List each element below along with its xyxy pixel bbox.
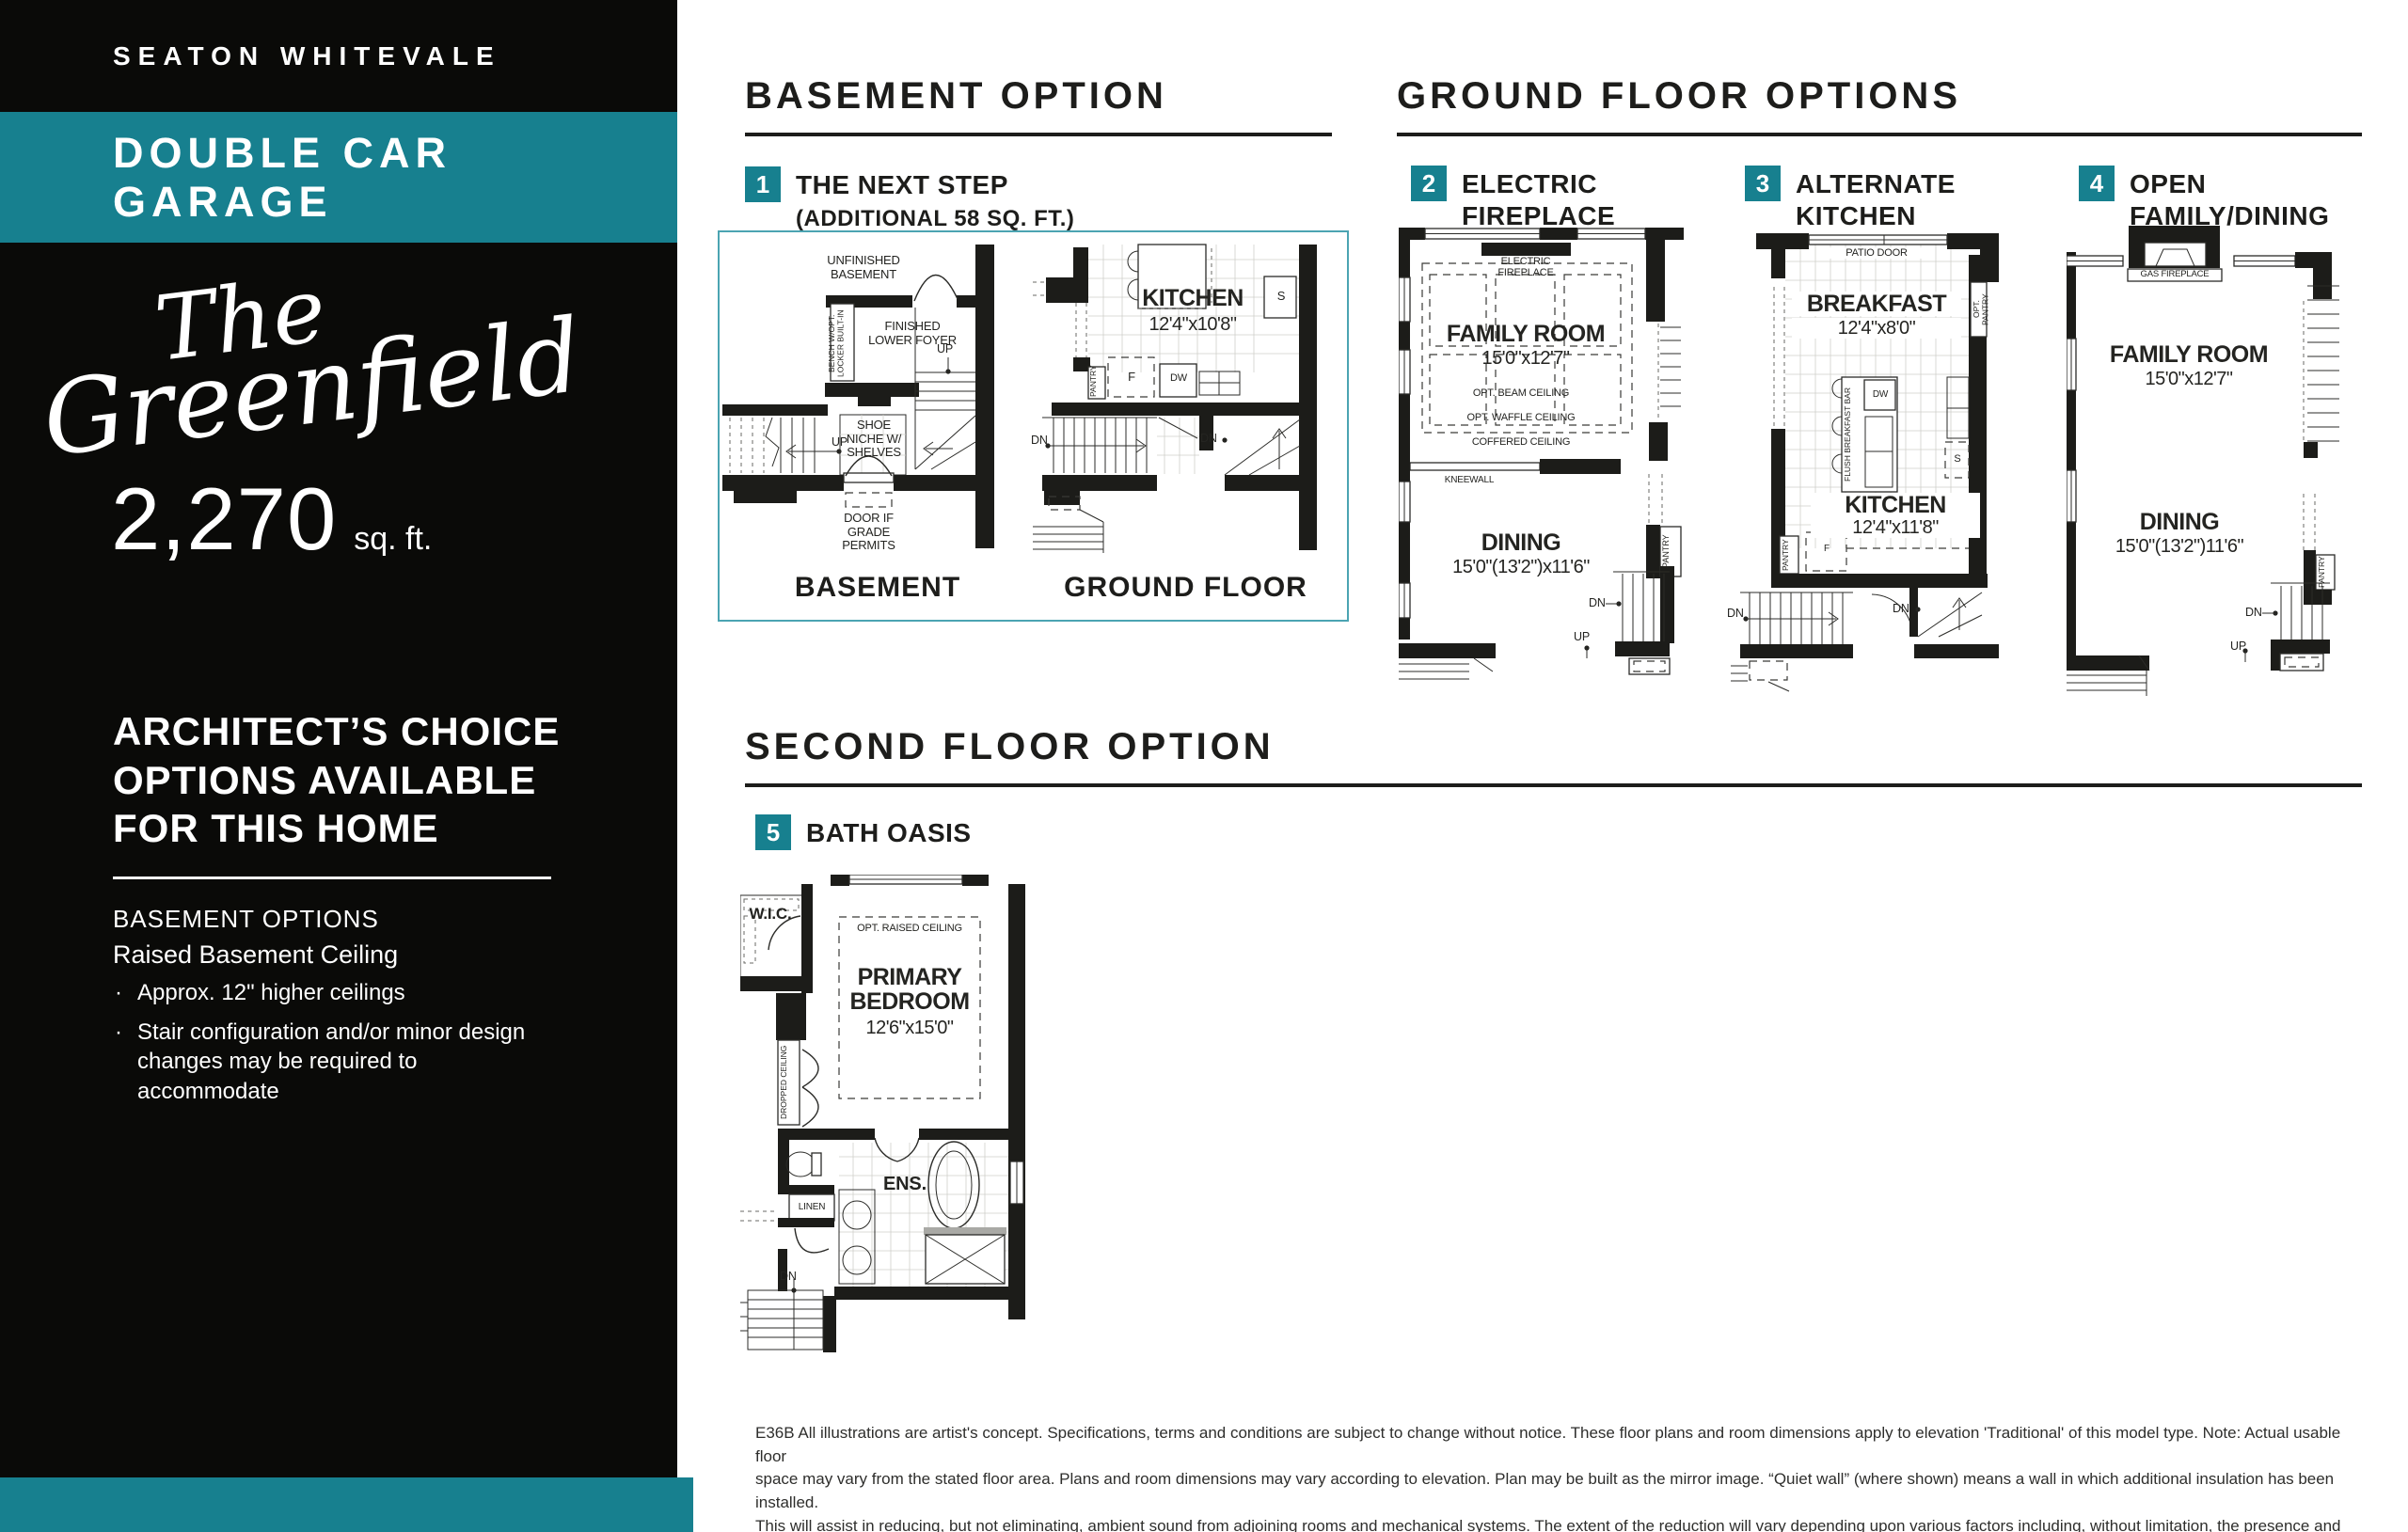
option-4-floorplan-drawing	[2067, 226, 2403, 696]
option-3-header: 3 ALTERNATE KITCHEN	[1745, 166, 1956, 232]
fixture-label: F	[1122, 371, 1141, 385]
fixture-label: S	[1949, 453, 1966, 465]
room-dims: 15'0"x12'7"	[2095, 369, 2283, 389]
option-1-header: 1 THE NEXT STEP (ADDITIONAL 58 SQ. FT.)	[745, 166, 1074, 232]
room-label: PANTRY	[1782, 538, 1797, 572]
basement-option-bullets: · Approx. 12" higher ceilings · Stair co…	[115, 978, 564, 1116]
stair-label: DN	[780, 1270, 797, 1283]
option-1-subtitle: (ADDITIONAL 58 SQ. FT.)	[796, 205, 1074, 232]
room-dims: 12'4"x10'8"	[1108, 314, 1277, 335]
stair-label: UP	[937, 342, 953, 355]
stair-label: UP	[1574, 630, 1590, 643]
heading-rule	[745, 133, 1332, 136]
fixture-label: S	[1273, 290, 1290, 304]
room-label: SHOE NICHE W/ SHELVES	[840, 419, 908, 460]
section-title: SECOND FLOOR OPTION	[745, 726, 2362, 768]
room-title: KITCHEN	[1811, 493, 1980, 517]
stair-label: DN	[1893, 602, 1909, 615]
bullet-marker: ·	[115, 1018, 137, 1107]
section-title: BASEMENT OPTION	[745, 75, 1332, 118]
sqft-unit: sq. ft.	[354, 521, 432, 558]
heading-rule	[1397, 133, 2362, 136]
room-dims: 15'0"x12'7"	[1441, 348, 1610, 369]
basement-option-name: Raised Basement Ceiling	[113, 940, 398, 970]
sidebar-footer-band	[0, 1477, 693, 1532]
room-title: W.I.C.	[742, 905, 799, 923]
architects-line-1: ARCHITECT’S CHOICE	[113, 707, 560, 756]
room-title: FAMILY ROOM	[1441, 322, 1610, 346]
room-label: DOOR IF GRADE PERMITS	[829, 512, 909, 553]
stair-label: UP	[832, 435, 848, 449]
bath-oasis-floorplan-drawing	[740, 875, 1051, 1387]
option-4-badge: 4	[2079, 166, 2115, 201]
stair-label: DN	[1727, 607, 1744, 620]
option-5-header: 5 BATH OASIS	[755, 814, 972, 850]
room-dims: 12'6"x15'0"	[825, 1018, 994, 1038]
door-label: PATIO DOOR	[1830, 247, 1924, 259]
room-dims: 12'4"x8'0"	[1792, 318, 1961, 339]
room-title: ENS.	[872, 1174, 938, 1194]
option-2-floorplan: ELECTRIC FIREPLACE FAMILY ROOM 15'0"x12'…	[1399, 228, 1704, 698]
fixture-label: ELECTRIC FIREPLACE	[1478, 256, 1574, 279]
plan-caption: BASEMENT	[722, 572, 1033, 604]
fixture-label: DW	[1866, 389, 1894, 400]
bullet-item: · Stair configuration and/or minor desig…	[115, 1018, 564, 1107]
disclaimer-line: This will assist in reducing, but not el…	[755, 1515, 2347, 1532]
bullet-text: Stair configuration and/or minor design …	[137, 1018, 564, 1107]
room-dims: 12'4"x11'8"	[1811, 517, 1980, 538]
room-title: FAMILY ROOM	[2095, 342, 2283, 367]
option-5-title: BATH OASIS	[806, 814, 972, 850]
sqft-value: 2,270	[111, 468, 337, 570]
option-2-floorplan-drawing	[1399, 228, 1704, 698]
community-name: SEATON WHITEVALE	[113, 41, 501, 71]
stair-label: DN	[1589, 596, 1606, 609]
room-dims: 15'0"(13'2")x11'6"	[1427, 557, 1615, 577]
room-label: OPT. PANTRY	[1972, 284, 1985, 335]
option-4-floorplan: GAS FIREPLACE FAMILY ROOM 15'0"x12'7" DI…	[2067, 226, 2403, 696]
stair-label: DN	[1031, 434, 1048, 447]
room-label: LINEN	[789, 1202, 834, 1212]
bullet-item: · Approx. 12" higher ceilings	[115, 978, 564, 1008]
disclaimer-line: E36B All illustrations are artist's conc…	[755, 1422, 2347, 1468]
ceiling-label: OPT. RAISED CEILING	[844, 923, 975, 934]
garage-banner: DOUBLE CAR GARAGE	[0, 112, 677, 243]
basement-options-heading: BASEMENT OPTIONS	[113, 905, 379, 934]
room-title: DINING	[2085, 510, 2273, 534]
ceiling-label: COFFERED CEILING	[1455, 436, 1587, 448]
heading-rule	[745, 783, 2362, 787]
option-1-title-text: THE NEXT STEP	[796, 169, 1074, 201]
bullet-marker: ·	[115, 978, 137, 1008]
sidebar: SEATON WHITEVALE DOUBLE CAR GARAGE The G…	[0, 0, 677, 1532]
room-dims: 15'0"(13'2")11'6"	[2085, 536, 2273, 557]
disclaimer-line: space may vary from the stated floor are…	[755, 1468, 2347, 1514]
room-title: KITCHEN	[1108, 286, 1277, 310]
basement-floorplan: UNFINISHED BASEMENT BENCH W/OPT. LOCKER …	[722, 241, 1033, 617]
room-label: PANTRY	[1662, 529, 1679, 575]
ceiling-label: OPT. WAFFLE CEILING	[1455, 412, 1587, 423]
fixture-label: GAS FIREPLACE	[2130, 270, 2220, 280]
garage-banner-label: DOUBLE CAR GARAGE	[113, 129, 677, 227]
model-name: The Greenfield	[29, 230, 629, 472]
bath-oasis-floorplan: W.I.C. OPT. RAISED CEILING PRIMARY BEDRO…	[740, 875, 1051, 1387]
bullet-text: Approx. 12" higher ceilings	[137, 978, 405, 1008]
option-2-badge: 2	[1411, 166, 1447, 201]
ground-section-heading: GROUND FLOOR OPTIONS	[1397, 75, 2362, 136]
fixture-label: FLUSH BREAKFAST BAR	[1844, 384, 1857, 485]
stair-label: DN	[2245, 606, 2262, 619]
brochure-page: SEATON WHITEVALE DOUBLE CAR GARAGE The G…	[0, 0, 2408, 1532]
section-title: GROUND FLOOR OPTIONS	[1397, 75, 2362, 118]
room-title: DINING	[1436, 530, 1606, 555]
stair-label: UP	[2230, 640, 2246, 653]
option-5-badge: 5	[755, 814, 791, 850]
square-footage: 2,270 sq. ft.	[111, 468, 432, 570]
option-3-title: ALTERNATE KITCHEN	[1796, 166, 1956, 232]
option-3-badge: 3	[1745, 166, 1781, 201]
room-title: BREAKFAST	[1792, 292, 1961, 316]
option-3-floorplan: PATIO DOOR BREAKFAST 12'4"x8'0" OPT. PAN…	[1731, 224, 2041, 703]
option-4-header: 4 OPEN FAMILY/DINING	[2079, 166, 2408, 232]
toilet	[786, 1152, 821, 1177]
room-label: PANTRY	[2318, 557, 2333, 588]
option-2-header: 2 ELECTRIC FIREPLACE	[1411, 166, 1603, 232]
room-title: PRIMARY BEDROOM	[825, 965, 994, 1015]
fixture-label: F	[1817, 544, 1836, 554]
stair-label: DN	[1200, 432, 1217, 445]
basement-section-heading: BASEMENT OPTION	[745, 75, 1332, 136]
room-label: PANTRY	[1089, 369, 1104, 397]
plan-caption: GROUND FLOOR	[1033, 572, 1339, 604]
option-2-title: ELECTRIC FIREPLACE	[1462, 166, 1603, 232]
room-label: UNFINISHED BASEMENT	[816, 254, 911, 281]
architects-line-3: FOR THIS HOME	[113, 804, 560, 853]
architects-line-2: OPTIONS AVAILABLE	[113, 756, 560, 805]
sidebar-divider	[113, 877, 551, 879]
shower	[924, 1227, 1006, 1284]
option-1-title: THE NEXT STEP (ADDITIONAL 58 SQ. FT.)	[796, 166, 1074, 232]
architects-choice-heading: ARCHITECT’S CHOICE OPTIONS AVAILABLE FOR…	[113, 707, 560, 853]
room-label: BENCH W/OPT. LOCKER BUILT-IN	[828, 307, 852, 380]
wall-label: KNEEWALL	[1422, 475, 1516, 485]
ceiling-label: OPT. BEAM CEILING	[1455, 387, 1587, 399]
ceiling-label: DROPPED CEILING	[780, 1044, 797, 1121]
option-4-title: OPEN FAMILY/DINING	[2130, 166, 2408, 232]
ground-floorplan: KITCHEN 12'4"x10'8" PANTRY F DW S DN DN …	[1033, 241, 1339, 617]
legal-disclaimer: E36B All illustrations are artist's conc…	[755, 1422, 2347, 1532]
fixture-label: DW	[1164, 372, 1193, 384]
option-1-badge: 1	[745, 166, 781, 202]
second-section-heading: SECOND FLOOR OPTION	[745, 726, 2362, 787]
model-name-text: Greenfield	[38, 300, 629, 472]
